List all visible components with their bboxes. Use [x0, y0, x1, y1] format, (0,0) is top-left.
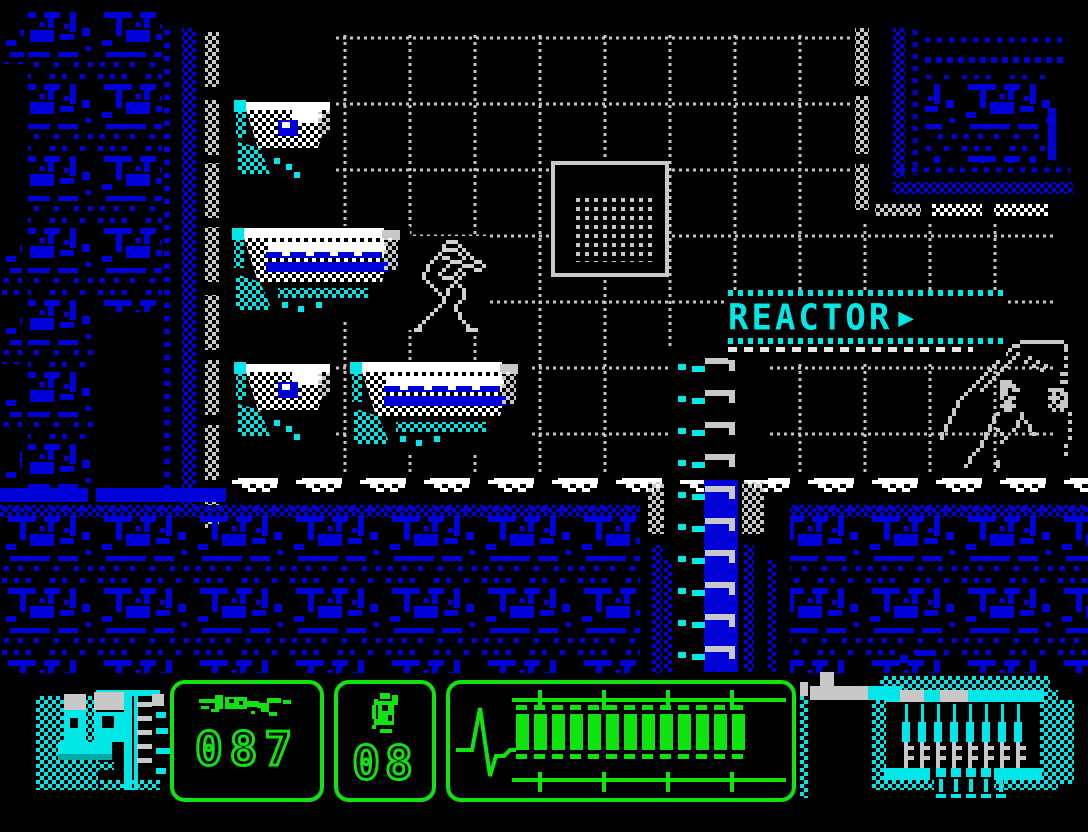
health-segment [696, 714, 709, 750]
health-segment [516, 714, 529, 750]
ammo-count: 087 [174, 725, 320, 773]
health-segment [750, 714, 763, 750]
right-arrow-icon: ▶ [898, 299, 914, 337]
hud-left-machinery [36, 690, 170, 790]
health-segment [786, 714, 799, 750]
grenade-count: 08 [338, 739, 432, 787]
health-segment [552, 714, 565, 750]
health-panel [446, 680, 796, 802]
health-segment [534, 714, 547, 750]
grenade-panel: 08 [334, 680, 436, 802]
sign-label: REACTOR [728, 298, 892, 338]
health-segment [642, 714, 655, 750]
ekg-icon [454, 692, 518, 796]
ammo-panel: 087 [170, 680, 324, 802]
sign-underline [728, 347, 973, 352]
left-circuit-wall [2, 8, 219, 528]
health-segment [678, 714, 691, 750]
health-segment [768, 714, 781, 750]
health-segment [660, 714, 673, 750]
health-segment [714, 714, 727, 750]
lower-circuit-floor [0, 488, 1088, 673]
ladder [648, 346, 776, 673]
health-bar-segments [516, 714, 799, 750]
health-segment [588, 714, 601, 750]
top-right-circuit [850, 0, 1088, 222]
game-screen[interactable]: REACTOR ▶ 087 [0, 0, 1088, 832]
health-segment [624, 714, 637, 750]
gray-zigzag-column [205, 32, 219, 528]
reactor-sign: REACTOR ▶ [728, 290, 1006, 360]
health-segment [606, 714, 619, 750]
vent-hatch [232, 98, 336, 190]
health-segment [732, 714, 745, 750]
grated-block [553, 163, 667, 275]
hud-divider-strip [800, 682, 808, 798]
vent-hatch [230, 226, 410, 321]
rifle-icon [197, 693, 297, 723]
health-segment [570, 714, 583, 750]
vent-hatch [232, 360, 336, 452]
sign-dotted-border [728, 290, 1006, 296]
grenade-icon [368, 693, 402, 737]
vent-hatch [348, 360, 528, 455]
